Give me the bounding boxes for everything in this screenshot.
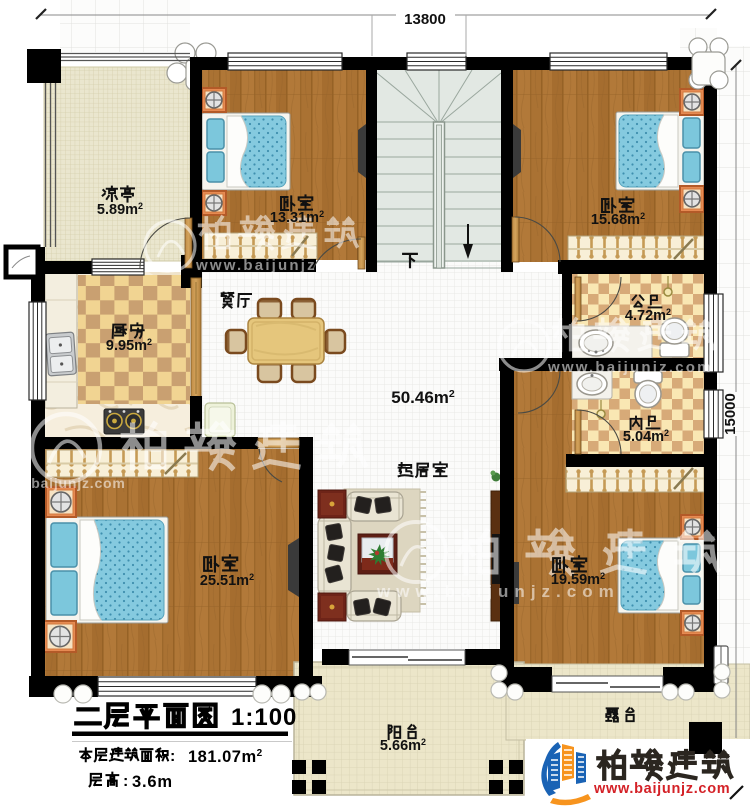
svg-text:www.baijunjz.com: www.baijunjz.com [0, 475, 126, 491]
svg-text::: : [170, 748, 175, 765]
svg-text::: : [123, 773, 128, 790]
svg-text:3.6m: 3.6m [132, 773, 173, 791]
svg-text:15000: 15000 [722, 393, 739, 435]
svg-text:9.95m2: 9.95m2 [106, 337, 152, 354]
svg-text:www.baijunjz.com: www.baijunjz.com [593, 781, 730, 797]
svg-text:1:100: 1:100 [231, 704, 297, 731]
svg-text:4.72m2: 4.72m2 [625, 307, 671, 324]
svg-text:5.04m2: 5.04m2 [623, 428, 669, 445]
svg-text:50.46m2: 50.46m2 [391, 388, 455, 407]
svg-text:5.89m2: 5.89m2 [97, 201, 143, 218]
svg-text:5.66m2: 5.66m2 [380, 737, 426, 754]
svg-text:www.baijunjz.com: www.baijunjz.com [195, 257, 361, 274]
svg-text:www.baijunjz.com: www.baijunjz.com [547, 359, 713, 376]
svg-text:13800: 13800 [404, 11, 446, 28]
svg-text:181.07m2: 181.07m2 [188, 748, 263, 766]
svg-text:13.31m2: 13.31m2 [270, 209, 324, 226]
svg-text:19.59m2: 19.59m2 [551, 571, 605, 588]
svg-text:25.51m2: 25.51m2 [200, 572, 254, 589]
svg-text:15.68m2: 15.68m2 [591, 211, 645, 228]
